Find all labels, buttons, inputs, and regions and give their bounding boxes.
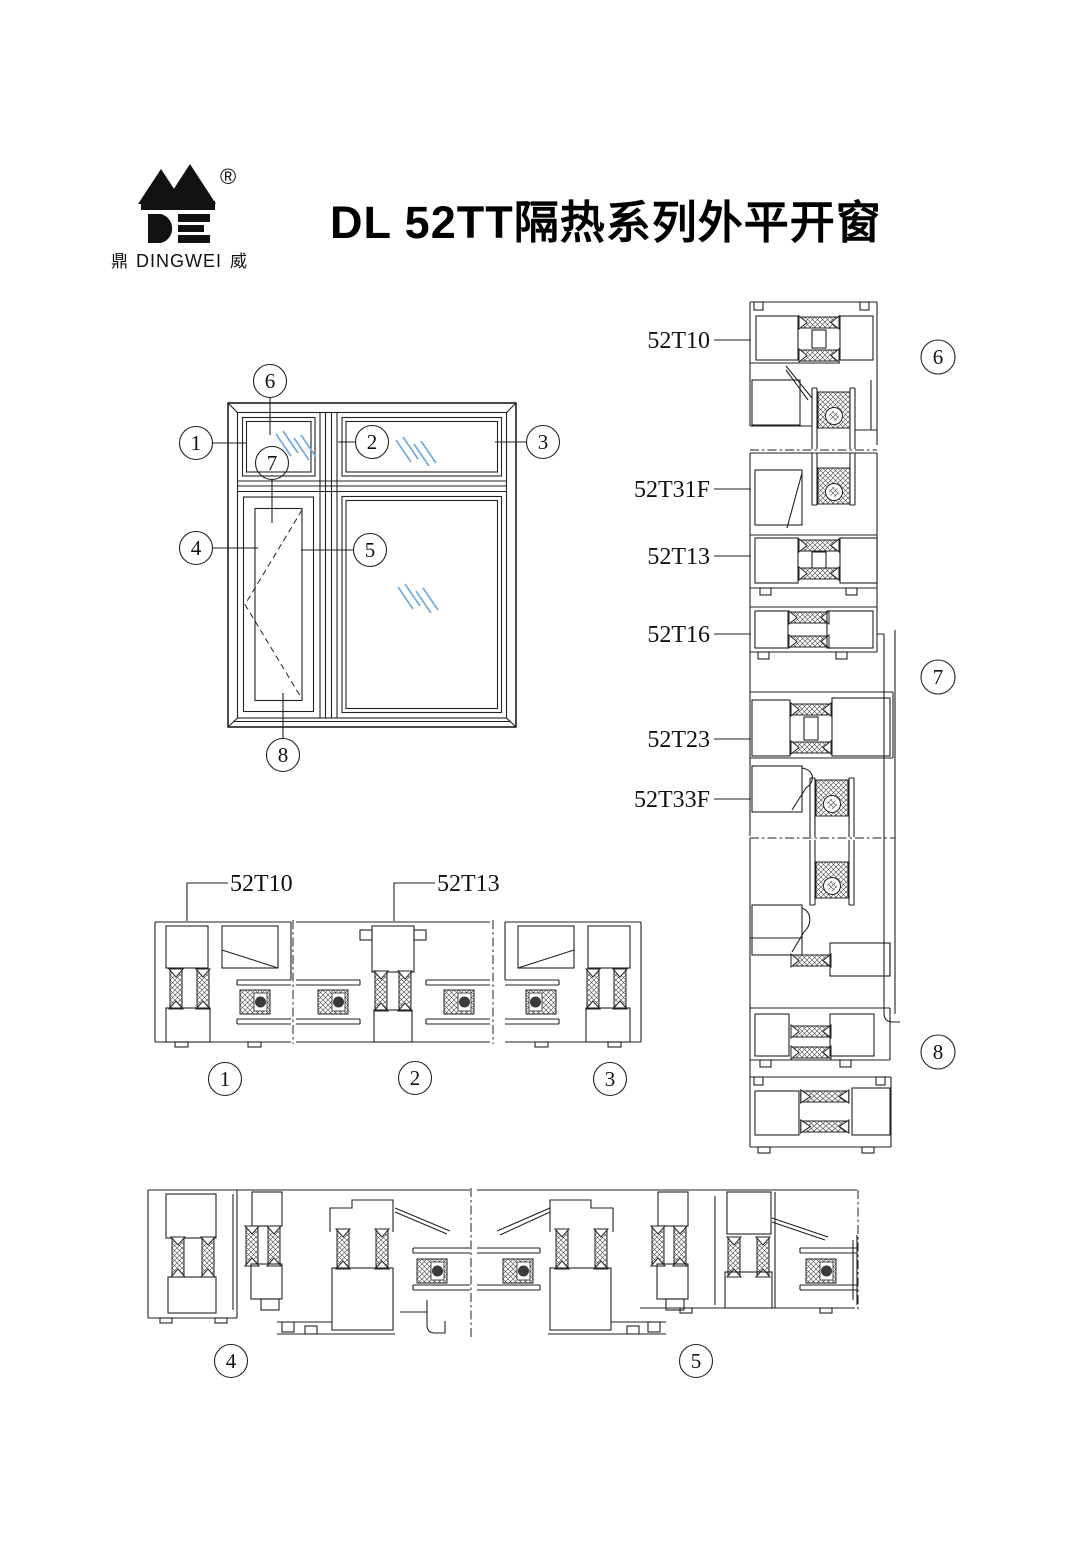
label-52T23: 52T23 xyxy=(647,727,710,753)
glass-marks xyxy=(276,431,438,613)
profile-labels-right: 52T10 52T31F 52T13 52T16 52T23 52T33F xyxy=(634,328,751,813)
label-52T33F: 52T33F xyxy=(634,787,710,813)
label-52T13: 52T13 xyxy=(647,544,710,570)
svg-text:4: 4 xyxy=(191,536,202,560)
svg-text:6: 6 xyxy=(933,345,944,369)
label-52T13-plan: 52T13 xyxy=(437,871,500,897)
svg-text:1: 1 xyxy=(220,1067,231,1091)
svg-text:5: 5 xyxy=(365,538,376,562)
svg-text:5: 5 xyxy=(691,1349,702,1373)
svg-text:7: 7 xyxy=(267,451,278,475)
label-52T16: 52T16 xyxy=(647,622,710,648)
opening-direction xyxy=(245,510,302,699)
transom xyxy=(238,481,507,492)
svg-text:7: 7 xyxy=(933,665,944,689)
casement-sash xyxy=(244,497,314,712)
vertical-section-strip: 52T10 52T31F 52T13 52T16 52T23 52T33F 6 … xyxy=(634,302,955,1153)
label-52T10-plan: 52T10 xyxy=(230,871,293,897)
svg-text:2: 2 xyxy=(367,430,378,454)
svg-text:3: 3 xyxy=(605,1067,616,1091)
elevation-callouts: 6 1 2 3 7 4 5 8 xyxy=(180,365,560,772)
sash-section-strip: 4 5 xyxy=(148,1188,858,1378)
window-elevation: 6 1 2 3 7 4 5 8 xyxy=(180,365,560,772)
svg-text:8: 8 xyxy=(278,743,289,767)
svg-text:6: 6 xyxy=(265,369,276,393)
svg-text:1: 1 xyxy=(191,431,202,455)
label-52T10: 52T10 xyxy=(647,328,710,354)
svg-text:2: 2 xyxy=(410,1066,421,1090)
svg-text:8: 8 xyxy=(933,1040,944,1064)
svg-text:4: 4 xyxy=(226,1349,237,1373)
profile-labels-plan: 52T10 52T13 xyxy=(187,871,500,921)
label-52T31F: 52T31F xyxy=(634,477,710,503)
plan-section-strip: 52T10 52T13 1 2 3 xyxy=(155,871,641,1096)
mullion xyxy=(320,413,337,719)
drawing-sheet: DL 52TT隔热系列外平开窗 ® 鼎 DINGWEI 威 xyxy=(0,0,1090,1542)
svg-text:3: 3 xyxy=(538,430,549,454)
